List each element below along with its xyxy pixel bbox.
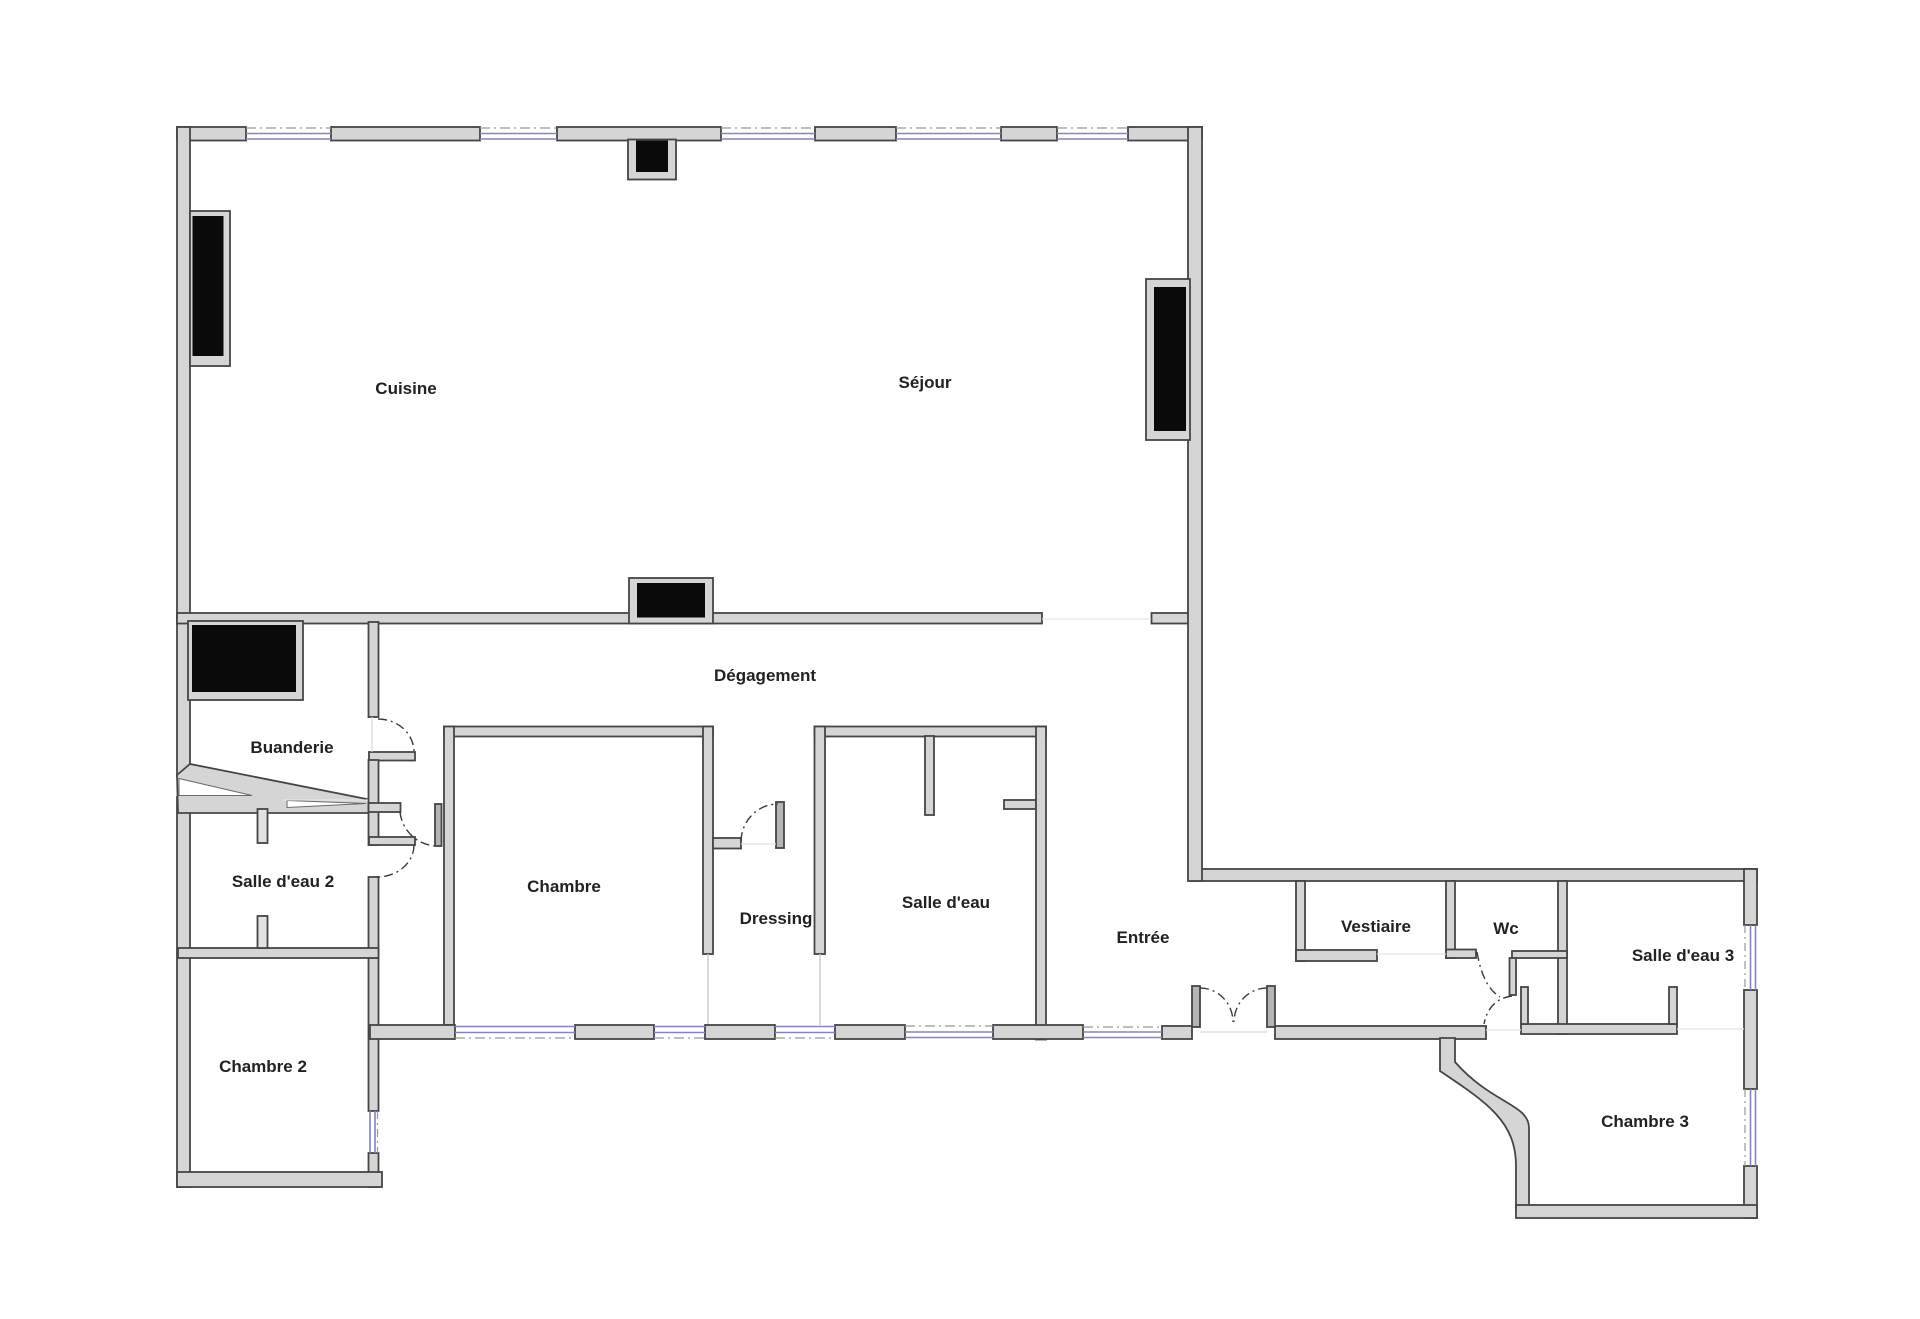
svg-text:Vestiaire: Vestiaire	[1341, 917, 1411, 936]
svg-text:Salle d'eau: Salle d'eau	[902, 893, 990, 912]
svg-text:Chambre 3: Chambre 3	[1601, 1112, 1689, 1131]
svg-text:Wc: Wc	[1493, 919, 1519, 938]
svg-text:Salle d'eau 3: Salle d'eau 3	[1632, 946, 1734, 965]
svg-text:Chambre: Chambre	[527, 877, 601, 896]
svg-text:Buanderie: Buanderie	[250, 738, 333, 757]
svg-text:Séjour: Séjour	[899, 373, 952, 392]
svg-text:Dressing: Dressing	[740, 909, 813, 928]
svg-text:Dégagement: Dégagement	[714, 666, 816, 685]
svg-text:Cuisine: Cuisine	[375, 379, 436, 398]
svg-text:Salle d'eau 2: Salle d'eau 2	[232, 872, 334, 891]
svg-text:Chambre 2: Chambre 2	[219, 1057, 307, 1076]
svg-text:Entrée: Entrée	[1117, 928, 1170, 947]
